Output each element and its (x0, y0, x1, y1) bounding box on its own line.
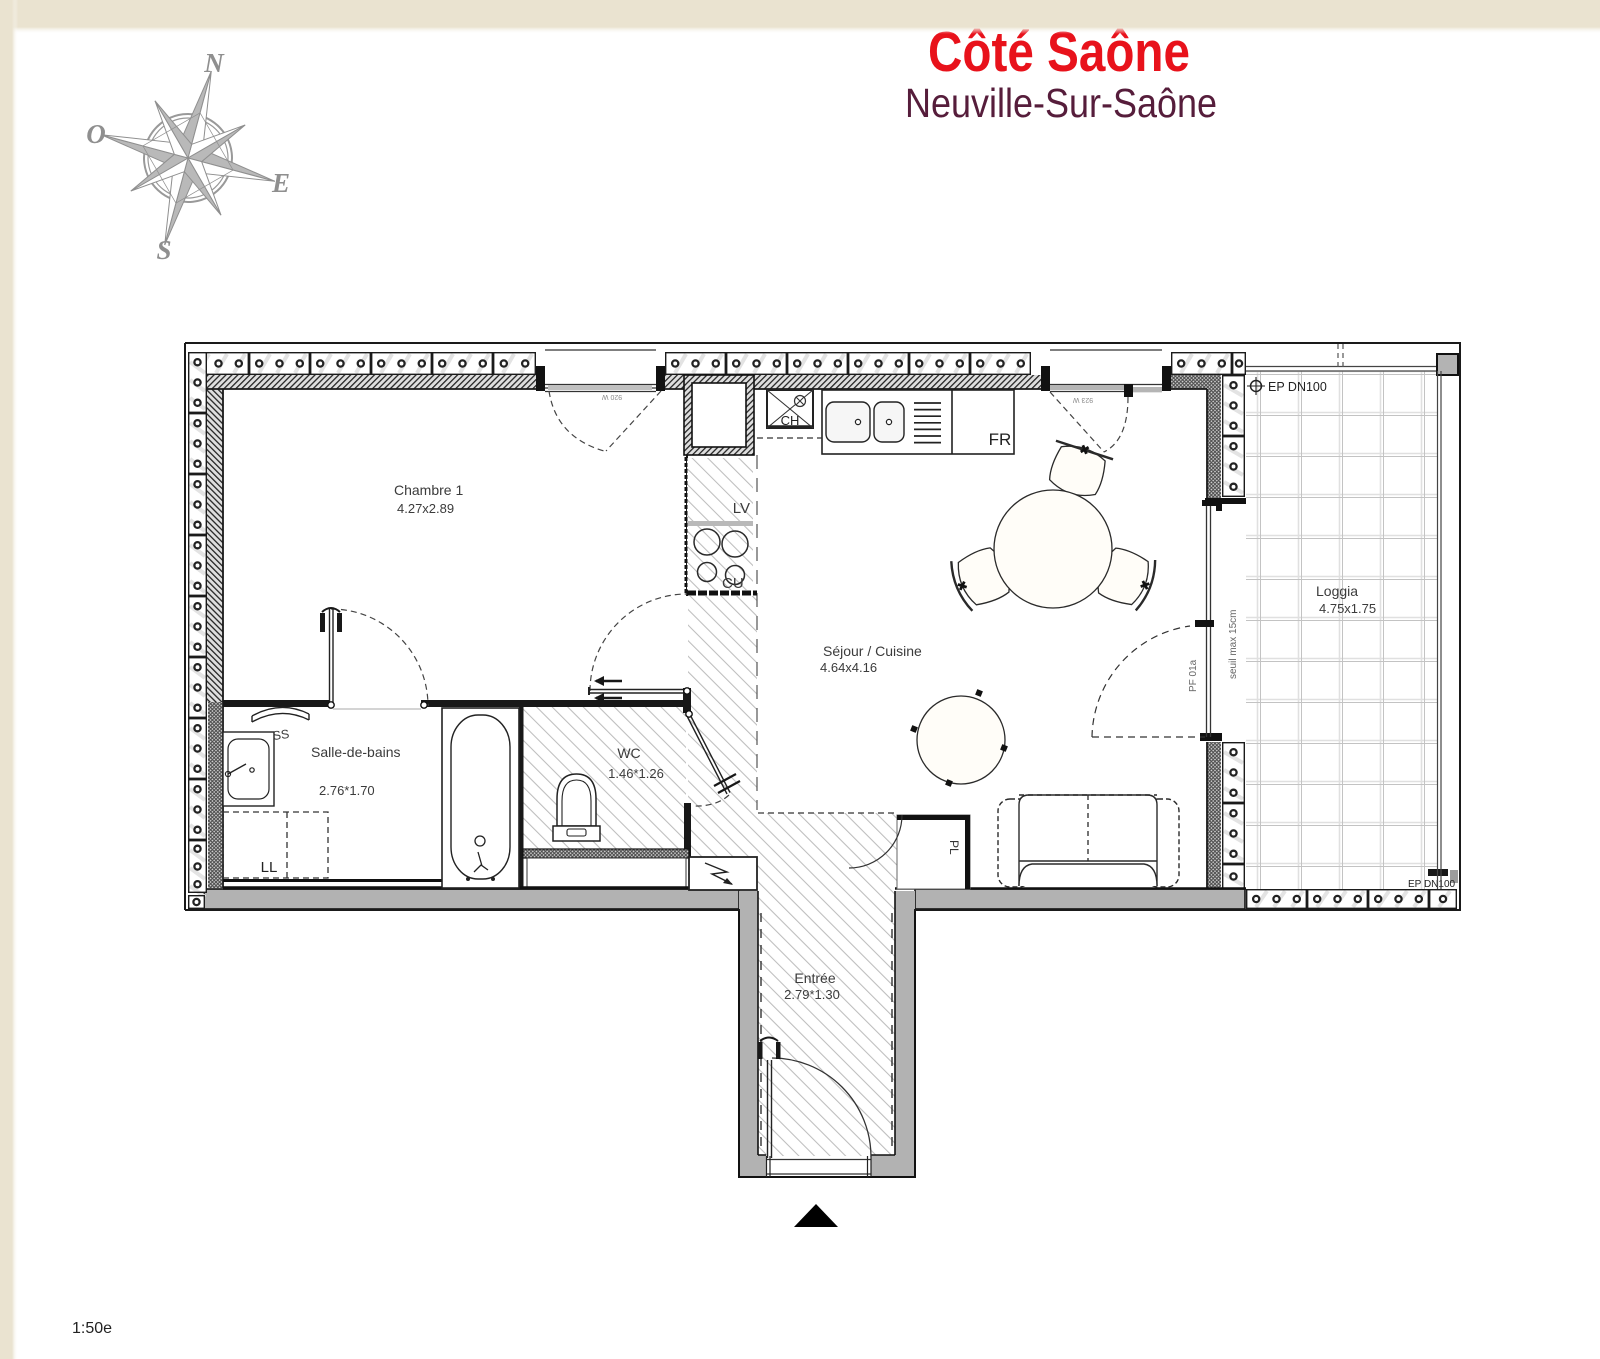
svg-text:4.64x4.16: 4.64x4.16 (820, 660, 877, 675)
svg-text:seuil max 15cm: seuil max 15cm (1228, 610, 1239, 679)
svg-text:PF 01a: PF 01a (1188, 659, 1199, 692)
svg-text:4.27x2.89: 4.27x2.89 (397, 501, 454, 516)
svg-text:S: S (156, 235, 171, 265)
svg-text:CU: CU (722, 575, 744, 592)
svg-text:1:50e: 1:50e (72, 1320, 112, 1337)
svg-text:2.79*1.30: 2.79*1.30 (784, 987, 840, 1002)
svg-text:Loggia: Loggia (1316, 583, 1358, 599)
svg-text:LV: LV (733, 500, 750, 517)
svg-text:Chambre 1: Chambre 1 (394, 482, 463, 498)
svg-text:FR: FR (989, 430, 1012, 449)
svg-text:923 W: 923 W (1072, 396, 1093, 403)
svg-text:WC: WC (617, 745, 640, 761)
svg-text:N: N (203, 48, 225, 78)
svg-text:1.46*1.26: 1.46*1.26 (608, 766, 664, 781)
svg-text:EP DN100: EP DN100 (1408, 879, 1456, 890)
svg-text:SS: SS (272, 727, 290, 743)
svg-text:4.75x1.75: 4.75x1.75 (1319, 601, 1376, 616)
svg-text:LL: LL (261, 859, 278, 876)
svg-text:920 W: 920 W (601, 393, 622, 400)
svg-text:CH: CH (781, 413, 800, 428)
svg-text:EP DN100: EP DN100 (1268, 380, 1327, 394)
svg-text:PL: PL (947, 840, 961, 855)
svg-text:Séjour / Cuisine: Séjour / Cuisine (823, 643, 922, 659)
svg-text:Neuville-Sur-Saône: Neuville-Sur-Saône (905, 80, 1217, 126)
svg-text:E: E (271, 168, 290, 198)
svg-text:Entrée: Entrée (794, 970, 835, 986)
svg-text:Salle-de-bains: Salle-de-bains (311, 744, 401, 760)
svg-text:2.76*1.70: 2.76*1.70 (319, 783, 375, 798)
svg-text:O: O (86, 119, 106, 149)
